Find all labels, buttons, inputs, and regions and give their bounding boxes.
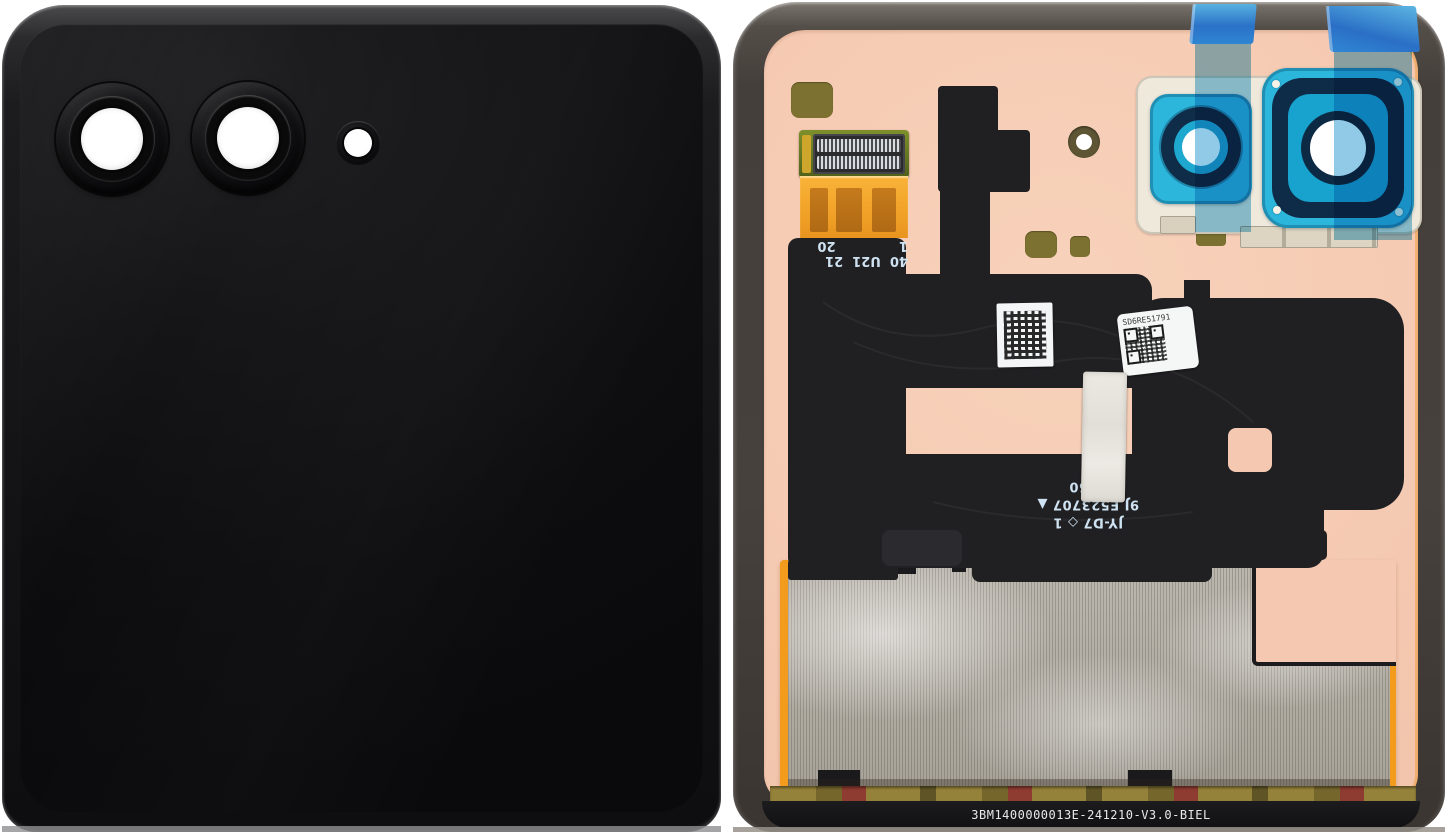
connector-pin-row-2 bbox=[817, 156, 901, 169]
olive-contact-pad-3 bbox=[1070, 236, 1090, 257]
rivet-3 bbox=[1273, 206, 1281, 214]
bracket-tab bbox=[1160, 216, 1196, 234]
flash-aperture bbox=[336, 121, 380, 165]
camera-lens-1 bbox=[56, 83, 168, 195]
qr-finder-topright bbox=[1149, 324, 1165, 340]
white-tape-strip bbox=[1081, 372, 1127, 503]
microphone-hole bbox=[1068, 126, 1100, 158]
camera-lens-1-glass bbox=[81, 108, 143, 170]
connector-pin-label-line2: 1 20 bbox=[796, 238, 908, 253]
microphone-hole-opening bbox=[1076, 134, 1092, 150]
qr-finder-topleft bbox=[1123, 327, 1139, 343]
board-connector-pcb bbox=[799, 130, 909, 178]
blue-pull-tape-2 bbox=[1334, 38, 1412, 240]
olive-contact-pad-2 bbox=[1025, 231, 1057, 258]
bottom-label-bar: 3BM1400000013E-241210-V3.0-BIEL bbox=[762, 801, 1420, 828]
flash-aperture-glass bbox=[344, 129, 372, 157]
datamatrix-code bbox=[1004, 311, 1047, 360]
blue-pull-tape-1-tab bbox=[1189, 4, 1256, 44]
olive-contact-pad-1 bbox=[791, 82, 833, 118]
connector-pin-label-line1: 40 U21 21 bbox=[796, 253, 908, 268]
datamatrix-label bbox=[996, 303, 1053, 368]
camera-lens-2 bbox=[192, 82, 304, 194]
board-to-board-connector bbox=[813, 134, 905, 174]
front-panel-cut-edge bbox=[2, 826, 721, 832]
blue-pull-tape-2-tab bbox=[1326, 6, 1420, 52]
serial-label: SD6RE51791 bbox=[1117, 306, 1200, 377]
qr-finder-bottomleft bbox=[1126, 349, 1142, 365]
rear-panel-cut-edge bbox=[733, 827, 1445, 832]
connector-pin-row-1 bbox=[817, 139, 901, 152]
camera-lens-2-glass bbox=[217, 107, 279, 169]
product-photo: 40 U21 21 1 20 JY-D7 ◇ 1 9J E523707 ▲ 24… bbox=[0, 0, 1445, 832]
connector-pin-label: 40 U21 21 1 20 bbox=[796, 216, 908, 268]
qr-code bbox=[1123, 324, 1167, 365]
flex-marking-line1: JY-D7 ◇ 1 bbox=[1002, 512, 1174, 530]
blue-pull-tape-1 bbox=[1195, 16, 1251, 232]
part-number-text: 3BM1400000013E-241210-V3.0-BIEL bbox=[971, 808, 1210, 822]
pcb-gold-cap bbox=[802, 135, 811, 173]
rivet-1 bbox=[1272, 80, 1280, 88]
